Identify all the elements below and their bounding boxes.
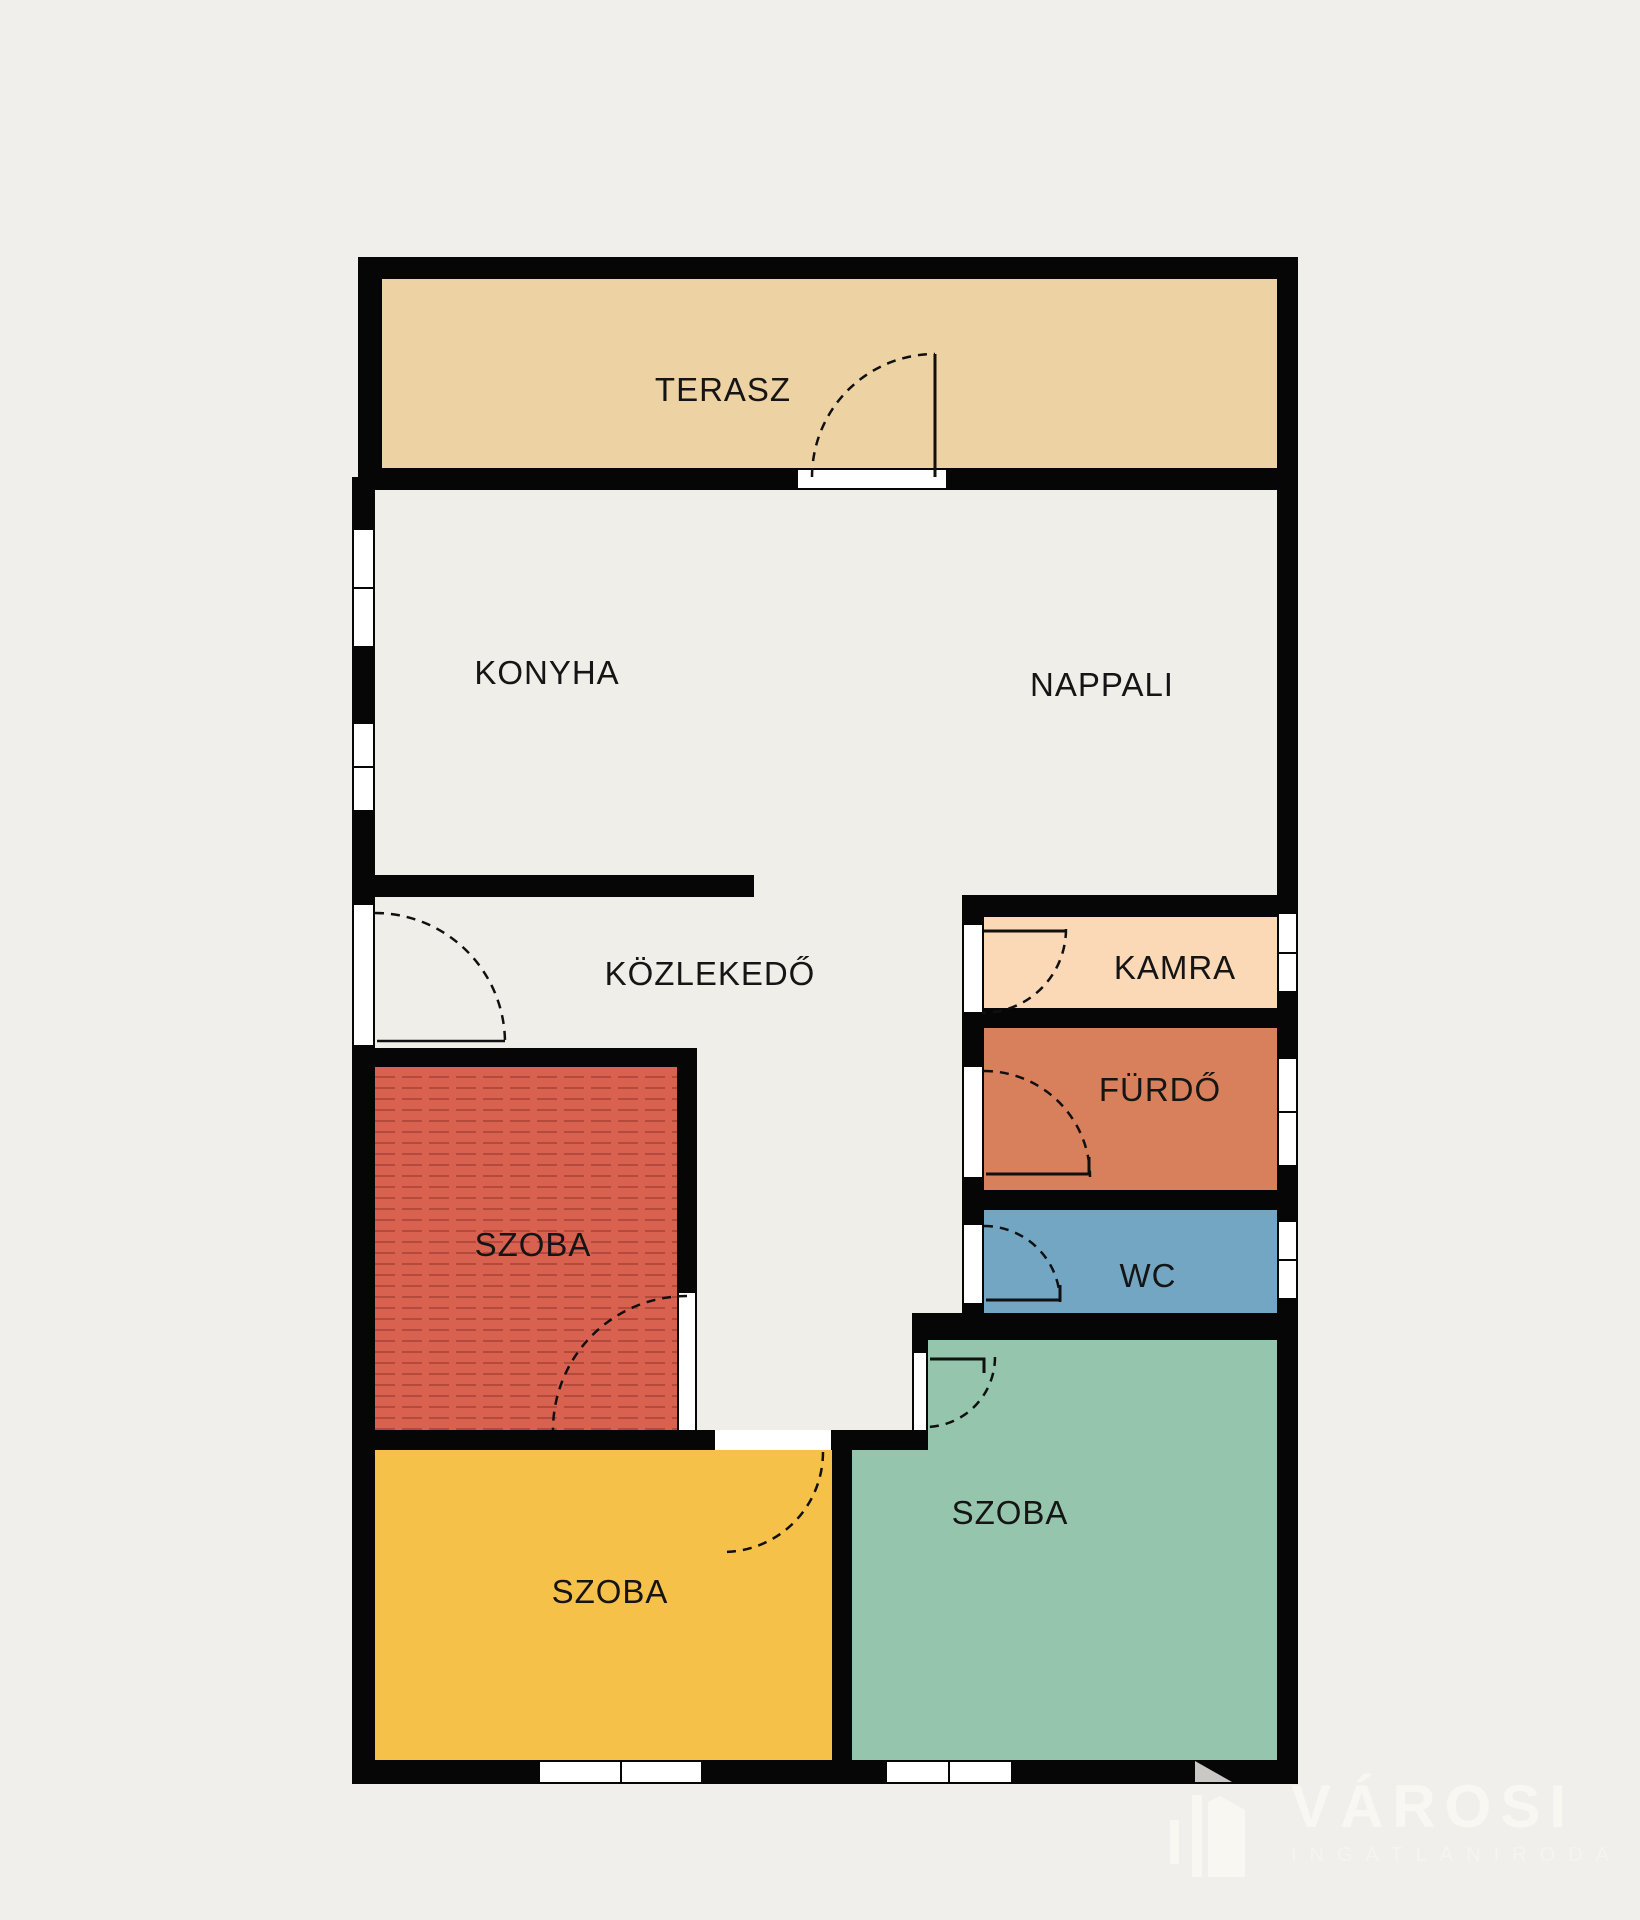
- room-nappali-label: NAPPALI: [1030, 666, 1174, 704]
- brand-subtitle: INGATLANIRODA: [1291, 1844, 1622, 1867]
- door-swing-arcs: [0, 0, 1640, 1920]
- room-szoba3-label: SZOBA: [952, 1494, 1069, 1532]
- room-terasz-label: TERASZ: [655, 371, 791, 409]
- room-furdo-label: FÜRDŐ: [1099, 1071, 1221, 1109]
- room-kozlekedo-label: KÖZLEKEDŐ: [605, 955, 816, 993]
- floorplan-canvas: TERASZ KONYHA NAPPALI KÖZLEKEDŐ KAMRA FÜ…: [0, 0, 1640, 1920]
- brand-name: VÁROSI: [1291, 1772, 1575, 1841]
- room-wc-label: WC: [1120, 1257, 1177, 1295]
- room-kamra-label: KAMRA: [1114, 949, 1236, 987]
- room-szoba2-label: SZOBA: [552, 1573, 669, 1611]
- room-szoba1-label: SZOBA: [475, 1226, 592, 1264]
- brand-logo-icon: [1150, 1750, 1260, 1885]
- room-konyha-label: KONYHA: [474, 654, 619, 692]
